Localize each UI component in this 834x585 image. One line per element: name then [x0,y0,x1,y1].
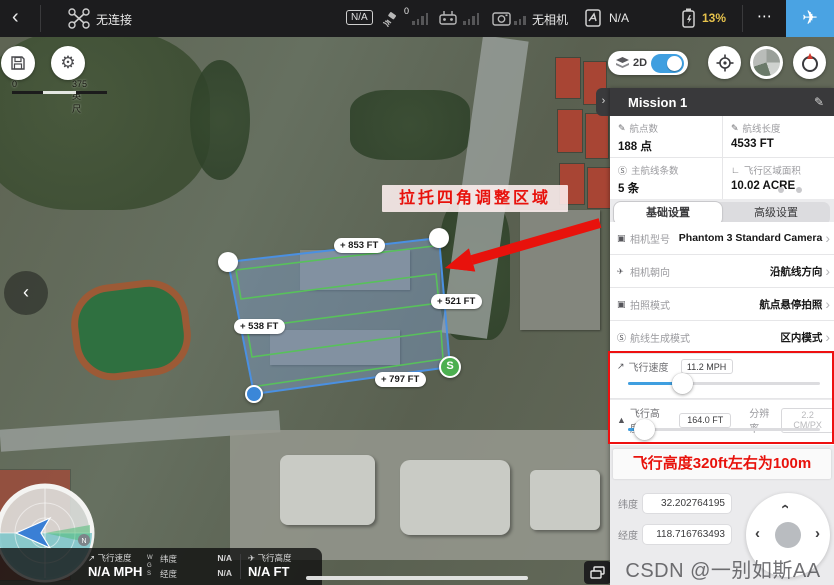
map-settings-button[interactable]: ⚙ [51,46,85,80]
route-icon: Ⓢ [617,331,630,344]
row-label: 拍照模式 [630,297,670,312]
row-photo-mode[interactable]: ▣ 拍照模式 航点悬停拍照 › [610,288,834,321]
drone-icon [68,8,90,29]
satellite-icon [382,10,400,27]
chevron-right-icon: › [825,329,830,345]
layers-icon [616,57,629,69]
nudge-left-icon[interactable]: ‹ [755,525,760,542]
connection-status: 无连接 [96,11,132,28]
battery-percentage: 13% [702,11,726,25]
compass-reset-button[interactable] [793,46,826,79]
watermark: CSDN @一别如斯AA [612,554,834,583]
flight-speed-row: ↗ 飞行速度 11.2 MPH [610,354,834,399]
polygon-corner-handle[interactable] [218,252,238,272]
takeoff-plane-icon: ✈ [802,7,818,30]
telemetry-alt-label: 飞行高度 [258,553,292,563]
edge-distance-label: + 538 FT [234,319,285,334]
row-label: 相机朝向 [630,264,670,279]
more-menu-button[interactable]: ⋯ [748,6,782,30]
pen-icon: ✎ [731,123,739,134]
row-route-mode[interactable]: Ⓢ 航线生成模式 区内模式 › [610,321,834,354]
annotation-arrow [445,223,600,272]
takeoff-button[interactable]: ✈ [786,0,834,37]
flight-mode-value: N/A [609,11,629,25]
chevron-left-icon: ‹ [23,282,29,302]
row-value: 沿航线方向 [770,264,823,279]
panel-collapse-tab[interactable]: › [596,88,611,116]
speed-label: 飞行速度 [629,359,669,374]
row-camera-heading[interactable]: ✈ 相机朝向 沿航线方向 › [610,255,834,288]
chevron-right-icon: › [825,296,830,312]
longitude-label: 经度 [618,527,642,542]
telemetry-lat-label: 纬度 [160,553,177,565]
area-icon: ∟ [731,165,740,175]
stat-main-lines: Ⓢ主航线条数 5 条 [610,158,722,199]
stat-label: 飞行区域面积 [744,163,801,177]
page-indicator-dot [778,187,784,193]
nudge-center-dot[interactable] [775,522,801,548]
mission-stats: ✎航点数 188 点 ✎航线长度 4533 FT Ⓢ主航线条数 5 条 ∟飞行区… [610,116,834,199]
gps-count: 0 [404,6,409,16]
speed-slider-track[interactable] [628,382,820,385]
speed-slider-knob[interactable] [672,373,693,394]
compass-icon [799,52,821,74]
edit-mission-icon[interactable]: ✎ [814,95,824,109]
polygon-corner-handle-blue[interactable] [245,385,263,403]
edge-distance-label: + 797 FT [375,372,426,387]
route-icon: Ⓢ [618,164,627,177]
camera-icon [492,10,511,26]
longitude-input[interactable]: 118.716763493 [642,524,732,545]
altitude-slider-track[interactable] [628,428,820,431]
flight-altitude-row: ▲ 飞行高度 164.0 FT 分辨率 2.2 CM/PX [610,400,834,445]
stat-value: 4533 FT [731,138,834,150]
wgs-label: WGS [147,554,155,578]
camera-status: 无相机 [532,11,568,28]
chevron-right-icon: › [825,263,830,279]
stat-value: 188 点 [618,138,722,154]
altitude-plane-icon: ✈ [248,553,255,563]
altitude-icon: ▲ [617,415,626,425]
polygon-corner-handle[interactable] [429,228,449,248]
stat-label: 航线长度 [743,121,781,135]
mission-title: Mission 1 [628,95,687,110]
camera-signal-bars [514,13,526,25]
rc-signal-bars [463,13,479,25]
speed-icon: ↗ [617,361,625,372]
stat-area: ∟飞行区域面积 10.02 ACRE [723,158,834,199]
2d-toggle-switch[interactable] [651,54,684,73]
telemetry-bar: ↗ 飞行速度 N/A MPH WGS 纬度 N/A 经度 N/A ✈ 飞行高度 … [0,548,322,585]
minimap-button[interactable] [750,46,783,79]
annotation-label: 拉托四角调整区域 [382,185,568,212]
drawer-collapse-button[interactable]: ‹ [4,271,48,315]
telemetry-coords: 纬度 N/A 经度 N/A [160,553,232,580]
latitude-input[interactable]: 32.202764195 [642,493,732,514]
compass-north-label: N [81,538,86,545]
app-window: 0 375 英尺 N [0,0,834,585]
home-indicator[interactable] [306,576,528,580]
telemetry-speed-value: N/A MPH [88,564,142,579]
copy-windows-icon [590,566,605,579]
chevron-right-icon: › [602,95,606,107]
edge-distance-label: + 853 FT [334,238,385,253]
mode-2d-label: 2D [633,57,647,69]
scale-start-label: 0 [12,79,17,89]
scale-end-label: 375 英尺 [72,79,87,115]
pen-icon: ✎ [618,123,626,134]
row-value: 区内模式 [780,330,822,345]
altitude-slider-knob[interactable] [634,419,655,440]
save-mission-button[interactable] [1,46,35,80]
stat-route-length: ✎航线长度 4533 FT [723,116,834,157]
scale-ruler [12,91,107,94]
stat-label: 主航线条数 [631,163,679,177]
speed-icon: ↗ [88,553,95,563]
top-status-bar: ‹ 无连接 N/A 0 [0,0,834,37]
row-camera-model[interactable]: ▣ 相机型号 Phantom 3 Standard Camera › [610,222,834,255]
status-na-badge: N/A [346,10,373,25]
crosshair-icon [716,54,734,72]
heading-icon: ✈ [617,267,630,276]
battery-icon [681,8,698,29]
telemetry-lat-value: N/A [217,553,232,565]
altitude-tip-text: 飞行高度320ft左右为100m [613,449,831,479]
gps-signal-bars [412,13,428,25]
telemetry-altitude: ✈ 飞行高度 N/A FT [248,552,292,579]
telemetry-lon-label: 经度 [160,568,177,580]
gear-icon: ⚙ [60,53,75,73]
telemetry-speed-label: 飞行速度 [98,553,132,563]
back-button[interactable]: ‹ [12,6,19,29]
telemetry-alt-value: N/A FT [248,564,292,579]
locate-button[interactable] [708,46,741,79]
mission-panel: Mission 1 ✎ ✎航点数 188 点 ✎航线长度 4533 FT Ⓢ主航… [610,88,834,585]
more-icon: ⋯ [757,8,773,25]
flight-mode-icon [584,8,604,28]
chevron-right-icon: › [825,230,830,246]
edge-distance-label: + 521 FT [431,294,482,309]
minimap-thumbnail [753,49,780,76]
camera-icon: ▣ [617,233,630,244]
stat-value: 5 条 [618,180,722,196]
save-icon [10,55,26,71]
altitude-value-input[interactable]: 164.0 FT [679,413,731,428]
mission-header: Mission 1 ✎ [610,88,834,116]
row-label: 相机型号 [630,231,670,246]
row-label: 航线生成模式 [630,330,690,345]
telemetry-speed: ↗ 飞行速度 N/A MPH [88,552,142,579]
remote-controller-icon [438,10,458,26]
screenshot-button[interactable] [584,561,611,584]
telemetry-lon-value: N/A [217,568,232,580]
map-mode-toggle[interactable]: 2D [608,51,688,75]
latitude-label: 纬度 [618,496,642,511]
nudge-right-icon[interactable]: › [815,525,820,542]
stat-label: 航点数 [630,121,659,135]
row-value: Phantom 3 Standard Camera [679,232,823,244]
camera-icon: ▣ [617,299,630,310]
stat-waypoints: ✎航点数 188 点 [610,116,722,157]
speed-value-input[interactable]: 11.2 MPH [681,359,733,374]
page-indicator-dot [796,187,802,193]
nudge-up-icon[interactable]: › [776,504,793,509]
route-start-marker[interactable]: S [439,356,461,378]
row-value: 航点悬停拍照 [759,297,822,312]
